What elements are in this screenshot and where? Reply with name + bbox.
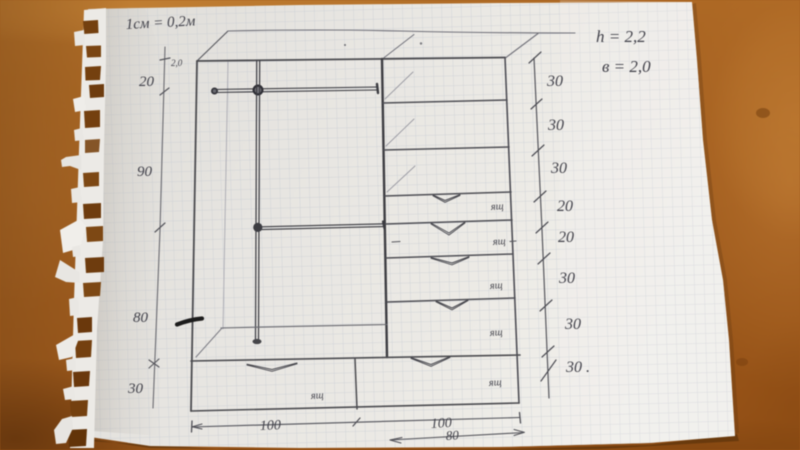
svg-text:100: 100 <box>260 418 282 434</box>
svg-text:ящ: ящ <box>491 236 506 248</box>
svg-text:30: 30 <box>127 381 144 397</box>
svg-text:20: 20 <box>558 229 574 246</box>
svg-text:ящ: ящ <box>309 390 324 402</box>
svg-text:2,0: 2,0 <box>171 58 183 68</box>
svg-text:20: 20 <box>139 74 155 90</box>
svg-text:80: 80 <box>445 427 459 443</box>
svg-text:90: 90 <box>137 164 153 180</box>
svg-text:30 .: 30 . <box>565 359 590 376</box>
svg-text:30: 30 <box>546 73 563 90</box>
svg-text:h = 2,2: h = 2,2 <box>596 27 646 46</box>
svg-text:в = 2,0: в = 2,0 <box>602 57 651 76</box>
svg-text:ящ: ящ <box>487 377 502 389</box>
svg-text:30: 30 <box>547 117 564 134</box>
svg-text:ящ: ящ <box>488 280 503 292</box>
svg-text:80: 80 <box>133 310 149 326</box>
svg-text:ящ: ящ <box>489 201 504 213</box>
svg-text:ящ: ящ <box>488 327 503 339</box>
svg-text:30: 30 <box>564 316 581 333</box>
svg-text:30: 30 <box>550 160 567 177</box>
svg-text:20: 20 <box>557 198 573 215</box>
svg-text:30: 30 <box>558 270 575 287</box>
